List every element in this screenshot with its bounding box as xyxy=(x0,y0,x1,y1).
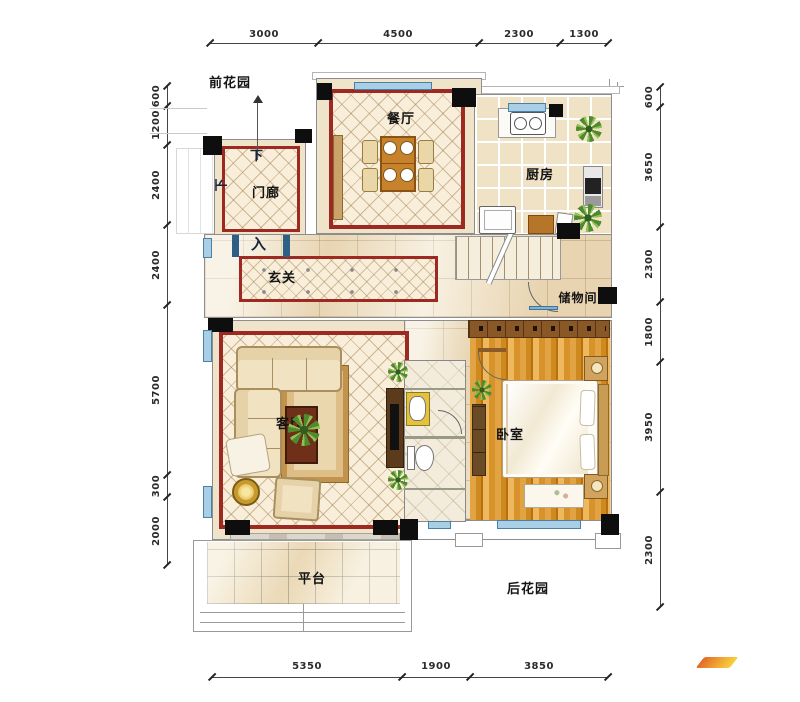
window xyxy=(497,520,581,529)
plant-icon xyxy=(576,116,602,142)
kitchen-stool xyxy=(528,215,554,234)
dining-chair xyxy=(418,168,434,192)
headboard xyxy=(598,384,609,476)
sofa-cushion-seam xyxy=(272,358,273,390)
dining-table-seam xyxy=(382,163,414,164)
toilet-tank xyxy=(407,446,415,470)
window xyxy=(203,330,212,362)
dim-label: 2300 xyxy=(644,242,656,286)
dim-label: 2300 xyxy=(499,29,539,41)
dim-label: 1900 xyxy=(416,661,456,673)
room-label-kitchen: 厨房 xyxy=(518,168,562,183)
dim-label: 2400 xyxy=(151,163,163,207)
sink-basin-icon xyxy=(514,117,527,130)
dim-tick xyxy=(163,561,171,569)
drum-stool xyxy=(232,478,260,506)
fridge-door-line xyxy=(484,210,512,230)
room-label-bedroom: 卧室 xyxy=(488,428,532,443)
window xyxy=(203,238,212,258)
sofa-cushion-seam xyxy=(306,358,307,390)
leader-line xyxy=(150,133,207,134)
armchair xyxy=(273,476,322,521)
dim-label: 2000 xyxy=(151,509,163,553)
dining-chair xyxy=(362,140,378,164)
sofa-top xyxy=(236,346,342,392)
bath-divider xyxy=(404,436,466,439)
wardrobe-handles xyxy=(472,326,606,331)
column xyxy=(452,88,476,107)
throw-blanket xyxy=(225,433,271,477)
mark-down-left: 下 xyxy=(216,178,230,191)
column xyxy=(295,129,312,143)
column xyxy=(557,223,580,239)
terrace-step-line xyxy=(303,604,304,632)
dim-line-bottom xyxy=(212,677,608,678)
plant-icon xyxy=(388,470,408,490)
column xyxy=(317,83,332,100)
dim-label: 2300 xyxy=(644,528,656,572)
arrow-head-icon xyxy=(253,95,263,103)
dim-line-top xyxy=(210,43,608,44)
dining-chair xyxy=(418,140,434,164)
outside-pier xyxy=(455,533,483,547)
column xyxy=(203,136,222,155)
storage-door-leaf xyxy=(529,306,558,310)
room-label-terrace: 平台 xyxy=(290,572,334,587)
dim-line-right xyxy=(660,87,661,607)
dim-label: 3850 xyxy=(519,661,559,673)
mark-down-top: 下 xyxy=(250,150,263,164)
dim-label: 300 xyxy=(151,464,163,508)
dim-label: 600 xyxy=(644,75,656,119)
dim-tick xyxy=(604,673,612,681)
dim-label: 2400 xyxy=(151,243,163,287)
room-label-dining: 餐厅 xyxy=(379,112,423,127)
tv-icon xyxy=(390,404,399,450)
column xyxy=(601,514,619,535)
outside-pier xyxy=(595,533,621,549)
dim-label: 1300 xyxy=(564,29,604,41)
bedroom-cabinet xyxy=(472,404,486,476)
plant-icon xyxy=(388,362,408,382)
room-label-front-garden: 前花园 xyxy=(200,76,260,91)
leader-line xyxy=(150,108,207,109)
window xyxy=(508,103,546,112)
room-label-foyer: 玄关 xyxy=(260,271,304,286)
dining-sideboard xyxy=(333,135,343,220)
bath-sink xyxy=(409,396,426,421)
sink-basin-icon xyxy=(529,117,542,130)
dim-tick xyxy=(604,39,612,47)
plate-icon xyxy=(383,141,397,155)
bedroom-door-leaf xyxy=(478,348,506,352)
dim-label: 5700 xyxy=(151,368,163,412)
entry-door-post xyxy=(232,235,239,257)
dim-label: 1200 xyxy=(151,103,163,147)
dim-label: 4500 xyxy=(378,29,418,41)
column xyxy=(400,519,418,540)
bath-divider xyxy=(404,388,466,390)
bathroom xyxy=(404,360,466,522)
pillow xyxy=(579,434,595,471)
column xyxy=(225,520,250,535)
plant-icon xyxy=(288,414,320,446)
stove-icon xyxy=(585,178,601,194)
dining-chair xyxy=(362,168,378,192)
plate-icon xyxy=(400,168,414,182)
column xyxy=(549,104,563,117)
floor-plan: 3000 4500 2300 1300 5350 1900 3850 600 1… xyxy=(0,0,800,702)
dim-tick xyxy=(656,603,664,611)
mark-enter: 入 xyxy=(251,237,266,251)
eave-line xyxy=(478,86,620,94)
lamp-icon xyxy=(591,362,603,374)
room-label-storage: 储物间 xyxy=(548,291,608,306)
dim-label: 1800 xyxy=(644,310,656,354)
dim-label: 3000 xyxy=(244,29,284,41)
room-label-back-garden: 后花园 xyxy=(496,582,560,597)
plate-icon xyxy=(400,141,414,155)
window xyxy=(203,486,212,518)
bed-bench xyxy=(524,484,584,508)
room-label-porch: 门廊 xyxy=(244,186,288,201)
plant-icon xyxy=(472,380,492,400)
entry-door-post xyxy=(283,235,290,257)
brand-logo xyxy=(696,657,739,668)
pillow xyxy=(579,390,595,427)
dim-label: 3650 xyxy=(644,145,656,189)
window xyxy=(428,521,451,529)
outdoor-steps xyxy=(176,148,216,234)
column xyxy=(373,520,398,535)
window xyxy=(354,82,432,90)
bath-divider xyxy=(404,488,466,490)
dim-label: 5350 xyxy=(287,661,327,673)
lamp-icon xyxy=(591,480,603,492)
plate-icon xyxy=(383,168,397,182)
dim-label: 3950 xyxy=(644,405,656,449)
